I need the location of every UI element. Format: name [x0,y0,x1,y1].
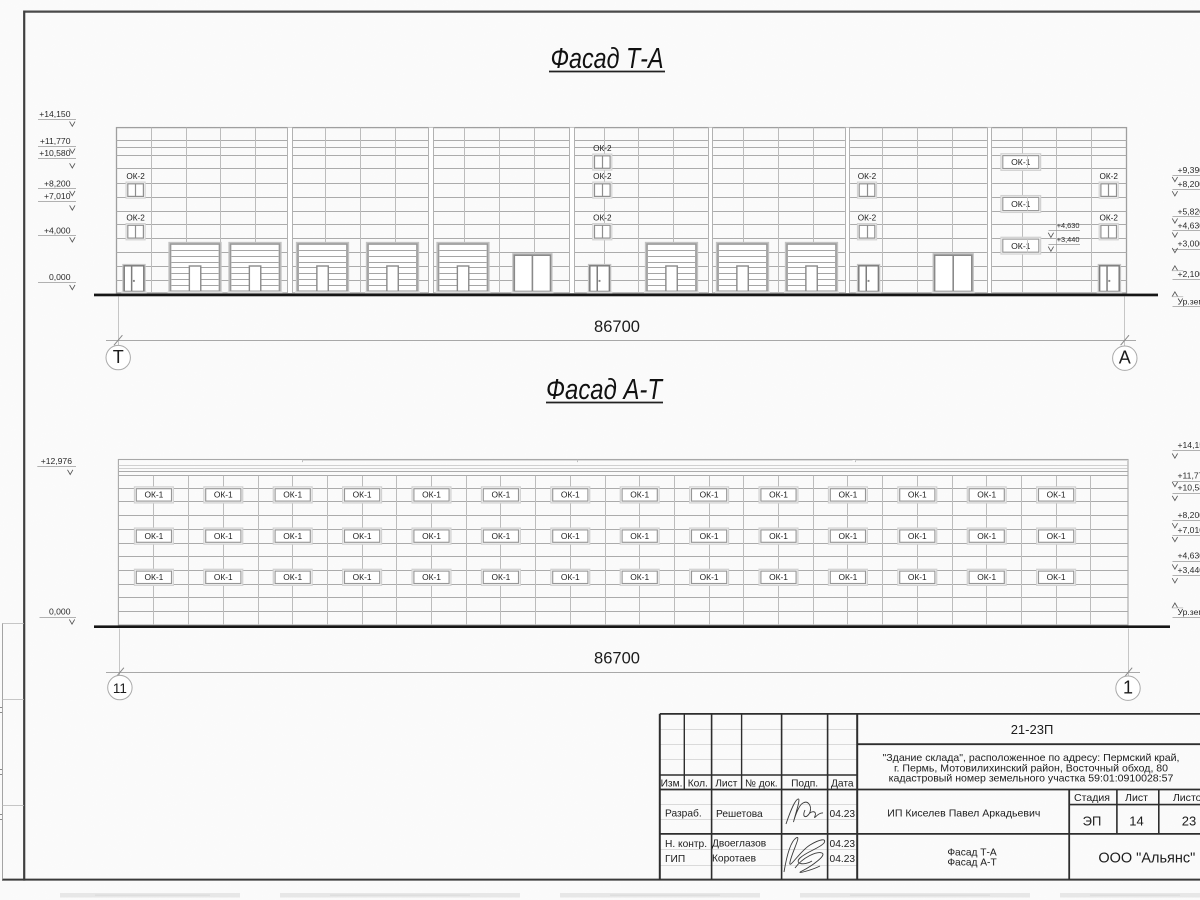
svg-text:+8,200: +8,200 [1178,510,1200,520]
svg-text:+8,200: +8,200 [44,178,71,188]
svg-text:23: 23 [1182,813,1196,828]
svg-text:ОК-1: ОК-1 [908,531,927,541]
svg-text:ОК-1: ОК-1 [700,572,719,582]
svg-text:ОК-1: ОК-1 [561,572,580,582]
svg-text:Коротаев: Коротаев [712,853,756,864]
svg-text:Подп.: Подп. [791,778,818,789]
svg-text:Листов: Листов [1173,792,1200,804]
svg-text:+10,580: +10,580 [39,148,71,158]
svg-text:А: А [1119,347,1131,367]
svg-text:Изм.: Изм. [661,778,683,789]
svg-text:ОК-1: ОК-1 [977,572,996,582]
svg-text:+9,390: +9,390 [1178,165,1200,175]
svg-text:Дата: Дата [831,778,854,789]
svg-text:14: 14 [1129,813,1143,828]
svg-text:+4,630: +4,630 [1057,221,1080,230]
svg-text:ГИП: ГИП [665,854,685,865]
svg-text:ОК-1: ОК-1 [422,531,441,541]
svg-text:ОК-1: ОК-1 [769,531,788,541]
svg-text:ОК-1: ОК-1 [908,490,927,500]
svg-text:Ур.земли: Ур.земли [1178,296,1200,306]
svg-text:Т: Т [113,347,124,367]
svg-text:ОК-2: ОК-2 [593,214,612,223]
svg-text:ОК-2: ОК-2 [858,172,877,181]
svg-text:04.23: 04.23 [830,839,856,850]
svg-text:+4,630: +4,630 [1178,551,1200,561]
svg-text:ОК-1: ОК-1 [1047,490,1066,500]
svg-text:№ док.: № док. [745,778,778,789]
svg-text:ОК-1: ОК-1 [977,531,996,541]
svg-text:+4,000: +4,000 [44,225,71,235]
svg-text:Ур.земли: Ур.земли [1178,607,1200,617]
svg-text:21-23П: 21-23П [1011,722,1054,737]
svg-text:ОК-2: ОК-2 [858,214,877,223]
svg-text:+11,770: +11,770 [1178,470,1200,480]
svg-text:Двоеглазов: Двоеглазов [712,839,766,850]
svg-text:ОК-1: ОК-1 [630,531,649,541]
svg-text:ОК-1: ОК-1 [144,572,163,582]
svg-text:ЭП: ЭП [1083,813,1102,828]
svg-text:Лист: Лист [1125,792,1148,804]
svg-text:ОК-2: ОК-2 [126,214,145,223]
svg-text:ОК-1: ОК-1 [561,531,580,541]
svg-text:+3,440: +3,440 [1057,235,1080,244]
svg-text:Фасад Т-А: Фасад Т-А [551,43,664,75]
svg-text:кадастровый номер земельного у: кадастровый номер земельного участка 59:… [889,772,1174,784]
svg-text:ОК-1: ОК-1 [1047,572,1066,582]
svg-text:86700: 86700 [594,318,640,336]
svg-text:ОК-1: ОК-1 [353,531,372,541]
svg-text:ОК-1: ОК-1 [908,572,927,582]
svg-text:ОК-1: ОК-1 [144,531,163,541]
svg-text:ОК-1: ОК-1 [283,531,302,541]
svg-text:ОК-1: ОК-1 [630,490,649,500]
svg-text:0,000: 0,000 [49,272,71,282]
svg-text:+10,580: +10,580 [1178,483,1200,493]
svg-text:ОК-2: ОК-2 [126,172,145,181]
svg-text:ОК-1: ОК-1 [144,490,163,500]
svg-text:ОК-1: ОК-1 [214,572,233,582]
svg-text:Фасад А-Т: Фасад А-Т [947,858,996,869]
svg-text:ОК-1: ОК-1 [838,490,857,500]
svg-text:ООО "Альянс": ООО "Альянс" [1098,851,1195,867]
svg-text:Н. контр.: Н. контр. [665,839,707,850]
svg-text:+3,000: +3,000 [1178,239,1200,249]
svg-text:ОК-1: ОК-1 [214,531,233,541]
svg-text:ОК-1: ОК-1 [491,572,510,582]
svg-text:86700: 86700 [594,650,640,668]
svg-text:+5,820: +5,820 [1178,206,1200,216]
svg-text:1: 1 [1123,677,1133,697]
svg-text:11: 11 [113,681,127,696]
svg-text:Фасад А-Т: Фасад А-Т [546,374,664,406]
svg-text:ОК-1: ОК-1 [214,490,233,500]
svg-text:ОК-1: ОК-1 [353,490,372,500]
svg-text:ОК-1: ОК-1 [838,531,857,541]
svg-text:Решетова: Решетова [716,809,763,820]
svg-text:+7,010: +7,010 [1178,525,1200,535]
svg-text:+11,770: +11,770 [40,136,71,146]
svg-text:ОК-1: ОК-1 [422,572,441,582]
svg-text:+14,150: +14,150 [39,109,71,119]
svg-text:ОК-1: ОК-1 [283,490,302,500]
svg-text:ОК-1: ОК-1 [561,490,580,500]
svg-text:ОК-1: ОК-1 [630,572,649,582]
svg-text:+7,010: +7,010 [44,191,71,201]
svg-text:ОК-1: ОК-1 [422,490,441,500]
svg-text:ОК-2: ОК-2 [593,144,612,153]
svg-text:04.23: 04.23 [830,854,856,865]
svg-text:ОК-1: ОК-1 [1047,531,1066,541]
svg-text:Лист: Лист [715,778,737,789]
svg-text:ОК-1: ОК-1 [491,490,510,500]
svg-text:ОК-1: ОК-1 [353,572,372,582]
svg-text:ОК-2: ОК-2 [593,172,612,181]
svg-text:ОК-1: ОК-1 [838,572,857,582]
svg-text:ОК-1: ОК-1 [769,572,788,582]
svg-text:Стадия: Стадия [1074,792,1110,804]
svg-text:Кол.: Кол. [688,778,708,789]
svg-text:ОК-1: ОК-1 [491,531,510,541]
svg-text:0,000: 0,000 [49,606,71,616]
svg-text:+14,150: +14,150 [1178,440,1200,450]
svg-text:+12,976: +12,976 [41,456,73,466]
svg-text:+4,630: +4,630 [1178,220,1200,230]
svg-text:ИП Киселев Павел Аркадьевич: ИП Киселев Павел Аркадьевич [887,808,1040,820]
svg-text:ОК-1: ОК-1 [283,572,302,582]
svg-text:ОК-1: ОК-1 [977,490,996,500]
svg-text:ОК-2: ОК-2 [1099,214,1118,223]
svg-text:+3,440: +3,440 [1178,565,1200,575]
svg-text:ОК-1: ОК-1 [700,490,719,500]
svg-text:ОК-1: ОК-1 [700,531,719,541]
svg-text:Разраб.: Разраб. [665,808,702,820]
svg-text:ОК-2: ОК-2 [1099,172,1118,181]
svg-text:ОК-1: ОК-1 [769,490,788,500]
svg-text:04.23: 04.23 [830,809,856,820]
svg-text:+8,200: +8,200 [1178,179,1200,189]
